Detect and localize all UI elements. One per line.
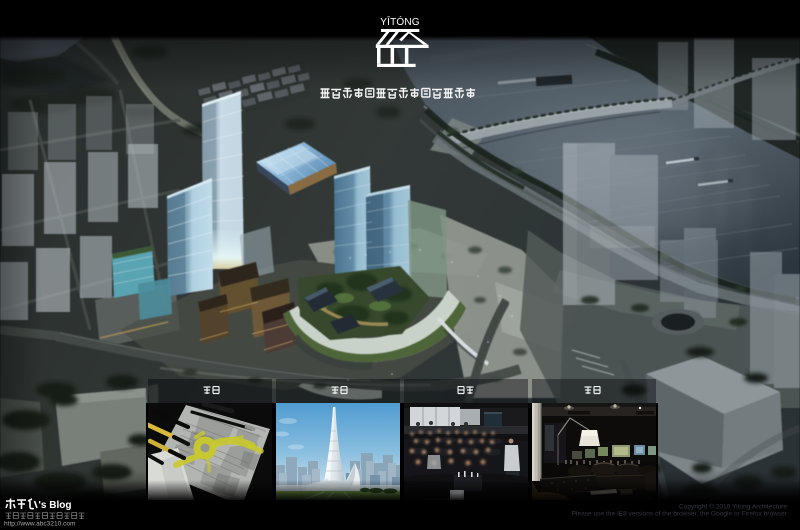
svg-text:'s Blog: 's Blog xyxy=(39,500,72,511)
